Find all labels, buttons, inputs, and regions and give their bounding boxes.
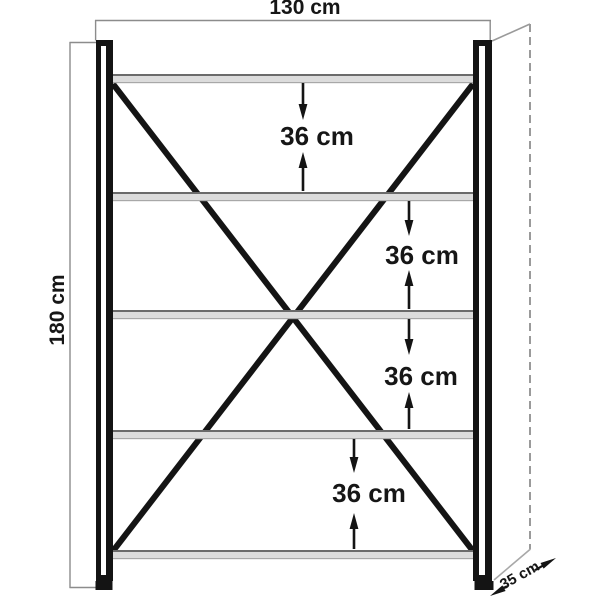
depth-top-edge — [492, 24, 530, 41]
shelf-2 — [113, 192, 473, 201]
right-post-stripe — [479, 46, 485, 575]
shelf-gap-label-2: 36 cm — [372, 240, 472, 270]
shelf-5 — [113, 550, 473, 559]
shelf-gap-label-4: 36 cm — [319, 478, 419, 508]
left-post — [96, 40, 114, 590]
shelf-1 — [113, 74, 473, 83]
shelf-3 — [113, 310, 473, 319]
depth-perspective-lines — [492, 24, 531, 580]
diagram-canvas — [0, 0, 600, 600]
shelf-gap-label-1: 36 cm — [267, 121, 367, 151]
right-post — [473, 40, 494, 590]
arrow-up-icon — [350, 513, 359, 529]
arrow-down-icon — [405, 339, 414, 355]
arrow-up-icon — [405, 270, 414, 286]
width-dimension-label: 130 cm — [245, 0, 365, 20]
shelving-dimension-diagram: 130 cm 180 cm 36 cm 36 cm 36 cm 36 cm 35… — [0, 0, 600, 600]
arrow-down-icon — [405, 220, 414, 236]
width-dimension-line — [95, 20, 491, 41]
height-dimension-label: 180 cm — [46, 265, 70, 355]
arrow-down-icon — [299, 104, 308, 120]
height-dimension-line — [70, 42, 98, 588]
left-post-foot — [96, 581, 113, 590]
shelf-gap-label-3: 36 cm — [371, 361, 471, 391]
arrow-down-icon — [350, 457, 359, 473]
arrow-up-icon — [299, 152, 308, 168]
arrow-up-icon — [405, 392, 414, 408]
shelf-4 — [113, 430, 473, 439]
left-post-stripe — [101, 46, 106, 575]
